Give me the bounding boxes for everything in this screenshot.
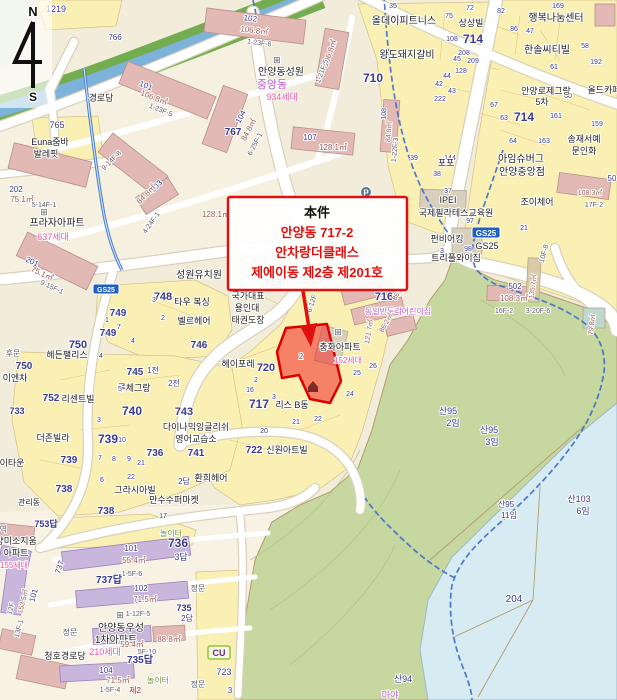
map-label: 국제필라테스교육원 — [419, 207, 494, 218]
callout-address: 안양동 717-2 — [281, 225, 354, 240]
map-label: 163 — [538, 138, 550, 145]
map-label: 후문 — [6, 349, 21, 358]
map-label: 조이체어 — [520, 197, 553, 207]
map-label: 3 — [228, 686, 233, 695]
map-label: 42 — [435, 81, 443, 88]
map-label: 717 — [249, 397, 269, 411]
map-label: 아임슈버그 — [498, 152, 544, 165]
map-label: 767 — [225, 127, 242, 138]
map-label: 5차 — [535, 96, 549, 107]
map-label: 24 — [346, 391, 354, 398]
map-label: 44 — [443, 73, 451, 80]
map-label: Euna줌바 — [31, 137, 69, 147]
map-label: 45 — [453, 56, 461, 63]
map-label: 934세대 — [266, 92, 298, 102]
map-label: 736 — [168, 536, 188, 550]
map-label: 2답 — [178, 476, 190, 486]
map-label: 108 — [446, 36, 458, 43]
map-label: 738 — [98, 506, 115, 517]
map-label: 35 — [389, 3, 397, 10]
map-label: 61 — [550, 64, 558, 71]
map-label: 9 — [127, 456, 131, 463]
map-label: ⊞ — [334, 327, 342, 337]
map-label: 101 — [124, 544, 138, 553]
map-label: 102 — [243, 13, 258, 24]
map-label: 산95 — [498, 499, 515, 509]
map-label: 1-12F-5 — [126, 611, 151, 618]
map-label: 놀이터 — [160, 528, 182, 538]
map-label: 47 — [526, 28, 534, 35]
map-label: 210세대 — [89, 647, 121, 657]
map-label: 경로당 — [89, 92, 114, 103]
map-label: 이엔차 — [3, 372, 29, 383]
map-label: 21 — [520, 225, 528, 232]
map-label: 152세대 — [334, 356, 362, 365]
map-label: 741 — [188, 448, 205, 459]
map-label: 765 — [49, 120, 64, 130]
map-label: 성원유치원 — [176, 269, 222, 281]
map-label: 왕도돼지갈비 — [379, 48, 434, 61]
map-label: 헤이포레 — [221, 358, 254, 369]
gs25-label: GS25 — [475, 241, 498, 251]
map-label: 75 — [445, 13, 453, 20]
map-label: 107 — [303, 133, 317, 142]
map-label: 71.5㎡ — [133, 595, 157, 604]
map-label: 108.3㎡ — [500, 294, 528, 303]
map-label: 97 — [466, 218, 474, 225]
map-label: 3-20F-6 — [526, 308, 551, 315]
map-label: 산94 — [394, 674, 412, 684]
map-label: 39 — [410, 155, 418, 162]
map-label: 안양동우성 — [98, 622, 144, 634]
map-canvas: GS25 GS25 GS25 CU P 1219766경로당765Euna줌바발… — [0, 0, 617, 700]
map-label: 21 — [292, 419, 300, 426]
map-label: 안양미소지움 — [0, 536, 37, 546]
map-label: 2 — [161, 315, 165, 322]
map-label: 4 — [99, 353, 103, 360]
map-label: 25 — [353, 370, 361, 377]
map-label: 20 — [260, 428, 268, 435]
map-label: 충화아파트 — [319, 342, 360, 352]
map-label: 문인화 — [572, 146, 597, 156]
map-label: 736 — [147, 448, 164, 459]
map-label: 740 — [122, 404, 142, 418]
map-label: 3 — [152, 297, 156, 304]
map-label: 161 — [550, 113, 562, 120]
map-label: 동일반두리어린이집 — [365, 306, 431, 316]
map-label: 723 — [216, 667, 231, 677]
map-label: 746 — [191, 340, 208, 351]
map-label: 루체그랑 — [117, 382, 150, 393]
map-label: 17 — [159, 513, 167, 520]
map-label: 735답 — [127, 654, 154, 666]
map-label: 2전 — [168, 378, 180, 388]
map-label: 1 — [105, 317, 109, 324]
compass-south-label: S — [29, 90, 37, 104]
map-label: 128 — [455, 68, 467, 75]
map-label: 738 — [56, 484, 73, 495]
map-label: 10 — [118, 437, 126, 444]
map-label: 722 — [246, 445, 263, 456]
map-label: 735 — [176, 603, 191, 613]
map-label: 716 — [375, 291, 393, 303]
map-label: 안양동성원 — [258, 66, 304, 78]
map-label: 올드카페 — [587, 85, 617, 95]
map-label: 155세대 — [0, 561, 28, 570]
map-label: 3 — [440, 248, 444, 255]
map-label: 국가대표 — [231, 291, 264, 301]
map-label: 올데이피트니스 — [372, 15, 436, 27]
map-label: 50 — [608, 174, 617, 183]
map-label: 1전 — [147, 365, 159, 375]
compass: N S — [0, 0, 52, 108]
map-label: 169 — [552, 3, 564, 10]
map-label: 3 — [97, 417, 101, 424]
map-label: 108.3㎡ — [578, 189, 603, 197]
map-label: ⊞ — [273, 55, 281, 65]
map-label: 202 — [9, 185, 23, 194]
map-label: 67 — [490, 102, 498, 109]
map-label: 7 — [98, 455, 102, 462]
map-label: ⊞ — [40, 207, 48, 217]
map-label: 733 — [9, 406, 24, 416]
map-label: 750 — [16, 361, 33, 372]
map-label: 753답 — [34, 518, 58, 529]
map-label: IPEI — [439, 195, 456, 205]
map-label: 222 — [434, 96, 446, 103]
map-label: 58 — [581, 43, 589, 50]
map-label: 739 — [98, 432, 118, 446]
map-label: 59.4㎡ — [120, 640, 144, 649]
map-label: 상상빌 — [459, 18, 484, 28]
map-label: 행복나눔센터 — [528, 12, 583, 24]
map-label: 8 — [112, 456, 116, 463]
gs25-badge-2: GS25 — [93, 284, 119, 294]
map-label: 64 — [509, 138, 517, 145]
map-label: 청호경로당 — [44, 650, 85, 661]
map-label: 2임 — [446, 417, 459, 428]
map-label: 발레핏 — [34, 149, 59, 159]
map-label: 22 — [127, 474, 135, 481]
map-label: 1-5F-4 — [100, 687, 121, 694]
callout-title: 本件 — [304, 205, 330, 220]
map-label: 204 — [506, 594, 523, 605]
map-label: 환희헤어 — [194, 472, 227, 483]
map-label: 16F-2 — [495, 308, 513, 315]
map-label: 신원아트빌 — [266, 445, 307, 455]
callout-unit: 제에이동 제2층 제201호 — [251, 265, 383, 280]
map-label: 2답 — [181, 613, 193, 623]
map-label: 38 — [433, 171, 441, 178]
map-label: 710 — [363, 71, 383, 85]
map-label: 17F-2 — [585, 202, 603, 209]
map-label: 86 — [510, 26, 518, 33]
map-label: 포포 — [438, 158, 455, 168]
cu-badge: CU — [208, 646, 230, 659]
map-label: 리센트빌 — [61, 394, 94, 404]
map-label: 16 — [246, 387, 254, 394]
map-label: 더존빌라 — [36, 433, 70, 443]
map-label: 프라자아파트 — [29, 217, 84, 229]
map-label: 749 — [100, 328, 117, 339]
map-label: 637세대 — [37, 232, 69, 242]
map-label: 3답 — [174, 551, 187, 562]
map-label: 37 — [444, 188, 452, 195]
map-label: 중앙동 — [257, 78, 287, 91]
map-label: 26 — [369, 363, 377, 370]
map-label: 마야 — [382, 690, 399, 700]
map-label: 안양로제그랑 — [521, 85, 571, 96]
map-label: 이타운 — [0, 458, 24, 468]
map-label: 5 — [118, 386, 122, 393]
map-label: 209 — [467, 58, 479, 65]
map-label: 7 — [117, 324, 121, 331]
map-label: 752 — [43, 393, 60, 404]
map-label: 749 — [110, 308, 127, 319]
map-label: 71.5㎡ — [106, 676, 130, 685]
map-label: 정문 — [191, 679, 206, 689]
map-label: 태권도장 — [231, 314, 264, 325]
map-label: 용인대 — [235, 303, 260, 313]
map-label: 관리동 — [18, 497, 40, 507]
map-label: 82 — [497, 8, 505, 15]
map-label: 104 — [99, 666, 113, 675]
map-label: 108 — [381, 108, 389, 120]
map-label: 745 — [127, 367, 144, 378]
map-label: 3임 — [485, 436, 498, 447]
map-label: 영어교습소 — [175, 434, 216, 444]
map-label: 6임 — [576, 505, 589, 516]
map-label: 748 — [154, 291, 172, 303]
map-label: 98 — [464, 246, 472, 253]
map-label: 펀비어킹 — [430, 233, 463, 244]
map-label: 55.4㎡ — [122, 556, 146, 565]
gs25-badge-text: GS25 — [476, 229, 497, 238]
map-label: 714 — [463, 32, 483, 46]
map-label: 산103 — [567, 494, 590, 504]
map-label: 트리플와이집 — [431, 252, 481, 263]
compass-north-label: N — [28, 4, 37, 19]
map-label: 128.1㎡ — [319, 143, 347, 152]
map-label: 헤든팰리스 — [46, 349, 87, 360]
map-label: 743 — [175, 406, 193, 418]
map-label: 산95 — [480, 425, 498, 435]
map-label: 102 — [134, 584, 148, 593]
map-label: 128.1㎡ — [202, 210, 230, 219]
map-label: 다이나믹잉글리쉬 — [163, 421, 229, 432]
map-label: 벨르헤어 — [177, 315, 210, 326]
map-label: 2 — [299, 352, 304, 361]
map-label: 제2 — [129, 686, 141, 695]
callout-building-name: 안차랑더클래스 — [275, 245, 359, 260]
map-label: 72 — [466, 5, 474, 12]
map-label: 714 — [514, 110, 534, 124]
map-label: 21 — [137, 460, 145, 467]
map-label: 아파트 — [4, 548, 29, 558]
map-label: 정문 — [191, 583, 206, 593]
map-label: 11임 — [501, 511, 517, 520]
map-label: 산95 — [439, 406, 457, 416]
map-label: 192 — [590, 59, 602, 66]
gs25-badge-2-text: GS25 — [97, 287, 115, 294]
map-label: 159 — [591, 121, 603, 128]
map-label: 502 — [508, 282, 522, 291]
map-label: 주거지역 — [0, 524, 7, 534]
map-label: 그라시아빌 — [114, 485, 155, 495]
map-label: 리스 B동 — [275, 400, 308, 410]
cu-badge-text: CU — [213, 648, 226, 658]
map-label: 737답 — [96, 574, 123, 586]
map-label: 1-5F-6 — [122, 571, 143, 578]
map-viewport[interactable]: GS25 GS25 GS25 CU P 1219766경로당765Euna줌바발… — [0, 0, 617, 700]
map-label: ⊞ — [116, 610, 124, 620]
map-label: 송재서예 — [567, 134, 600, 144]
map-label: 766 — [108, 33, 122, 42]
map-label: 만수수퍼마켓 — [149, 495, 199, 505]
map-label: 22 — [314, 416, 322, 423]
map-label: 4 — [131, 338, 135, 345]
map-label: 720 — [257, 362, 275, 374]
map-label: 타우 복싱 — [174, 297, 210, 307]
map-label: 88.8㎡ — [157, 635, 181, 644]
map-label: 75.1㎡ — [10, 195, 34, 204]
map-label: 63 — [500, 115, 508, 122]
map-label: 43 — [448, 88, 456, 95]
map-label: 정문 — [63, 627, 78, 637]
map-label: 안양중앙점 — [499, 166, 545, 178]
map-label: 놀이터 — [147, 675, 169, 685]
map-label: 739 — [61, 455, 78, 466]
map-label: 2 — [254, 377, 258, 384]
map-label: 한솔씨티빌 — [524, 44, 570, 56]
map-label: 6 — [100, 477, 104, 484]
